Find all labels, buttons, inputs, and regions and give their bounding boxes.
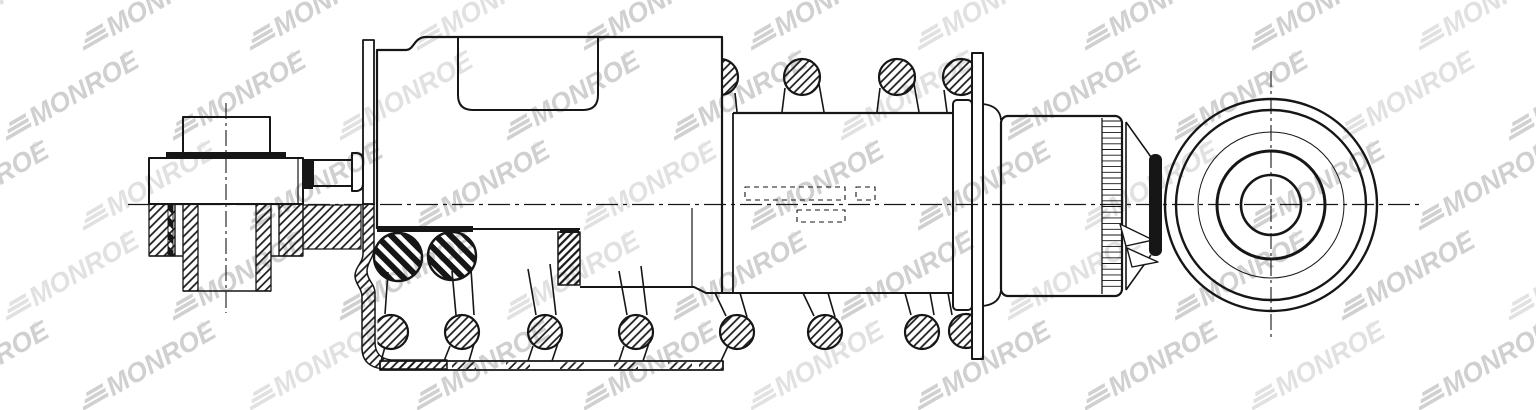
monroe-wing-icon bbox=[76, 203, 110, 231]
monroe-watermark: MONROE® bbox=[407, 0, 556, 58]
monroe-watermark: MONROE® bbox=[1409, 0, 1536, 58]
monroe-wing-icon bbox=[500, 293, 534, 321]
stud-section-hatch bbox=[303, 205, 361, 249]
monroe-watermark: MONROE® bbox=[998, 45, 1147, 148]
monroe-watermark: MONROE® bbox=[0, 45, 145, 148]
watermark-text: MONROE bbox=[268, 0, 389, 42]
monroe-watermark: MONROE® bbox=[741, 0, 890, 58]
monroe-watermark: MONROE® bbox=[1242, 315, 1391, 410]
monroe-wing-icon bbox=[1412, 203, 1446, 231]
monroe-wing-icon bbox=[1245, 23, 1279, 51]
monroe-watermark: MONROE® bbox=[1075, 315, 1224, 410]
monroe-watermark: MONROE® bbox=[831, 225, 980, 328]
watermark-text: MONROE bbox=[1437, 135, 1536, 222]
monroe-watermark: MONROE® bbox=[1499, 45, 1536, 148]
monroe-watermark: MONROE® bbox=[0, 315, 55, 410]
monroe-wing-icon bbox=[667, 293, 701, 321]
monroe-watermark: MONROE® bbox=[1499, 225, 1536, 328]
watermark-text: MONROE bbox=[1103, 0, 1224, 42]
monroe-wing-icon bbox=[1245, 383, 1279, 410]
monroe-watermark: MONROE® bbox=[908, 0, 1057, 58]
monroe-wing-icon bbox=[243, 23, 277, 51]
monroe-wing-icon bbox=[243, 383, 277, 410]
monroe-watermark: MONROE® bbox=[574, 135, 723, 238]
monroe-watermark: MONROE® bbox=[741, 135, 890, 238]
monroe-wing-icon bbox=[577, 203, 611, 231]
monroe-wing-icon bbox=[744, 383, 778, 410]
monroe-watermark: MONROE® bbox=[574, 0, 723, 58]
monroe-watermark: MONROE® bbox=[73, 315, 222, 410]
watermark-text: MONROE bbox=[769, 0, 890, 42]
monroe-watermark: MONROE® bbox=[407, 135, 556, 238]
watermark-text: MONROE bbox=[0, 315, 55, 402]
watermark-text: MONROE bbox=[1437, 0, 1536, 42]
watermark-text: MONROE bbox=[435, 0, 556, 42]
monroe-wing-icon bbox=[1078, 203, 1112, 231]
monroe-wing-icon bbox=[166, 293, 200, 321]
monroe-watermark: MONROE® bbox=[73, 0, 222, 58]
monroe-wing-icon bbox=[1168, 293, 1202, 321]
product-technical-drawing: MONROE®MONROE®MONROE®MONROE®MONROE®MONRO… bbox=[0, 0, 1536, 410]
monroe-watermark: MONROE® bbox=[73, 135, 222, 238]
monroe-wing-icon bbox=[333, 113, 367, 141]
monroe-wing-icon bbox=[911, 23, 945, 51]
watermark-text: MONROE bbox=[602, 0, 723, 42]
monroe-watermark: MONROE® bbox=[497, 45, 646, 148]
monroe-wing-icon bbox=[1335, 293, 1369, 321]
seal-ring bbox=[1149, 154, 1162, 256]
bump-stop-section bbox=[558, 232, 580, 285]
watermark-text: MONROE bbox=[0, 0, 55, 42]
monroe-wing-icon bbox=[500, 113, 534, 141]
monroe-watermark: MONROE® bbox=[330, 45, 479, 148]
monroe-watermark: MONROE® bbox=[664, 225, 813, 328]
monroe-wing-icon bbox=[0, 113, 33, 141]
monroe-watermark: MONROE® bbox=[1165, 225, 1314, 328]
monroe-watermark: MONROE® bbox=[0, 135, 55, 238]
monroe-watermark: MONROE® bbox=[1332, 225, 1481, 328]
monroe-watermark: MONROE® bbox=[0, 0, 55, 58]
monroe-wing-icon bbox=[1078, 23, 1112, 51]
housing-seat-edge bbox=[377, 226, 473, 232]
monroe-watermark: MONROE® bbox=[1409, 135, 1536, 238]
watermark-text: MONROE bbox=[1270, 0, 1391, 42]
watermark-text: MONROE bbox=[0, 135, 55, 222]
monroe-watermark: MONROE® bbox=[163, 45, 312, 148]
monroe-watermark: MONROE® bbox=[664, 45, 813, 148]
monroe-wing-icon bbox=[744, 203, 778, 231]
stud-washer bbox=[303, 159, 313, 189]
monroe-wing-icon bbox=[667, 113, 701, 141]
monroe-wing-icon bbox=[1168, 113, 1202, 141]
monroe-wing-icon bbox=[834, 113, 868, 141]
monroe-wing-icon bbox=[1001, 293, 1035, 321]
monroe-wing-icon bbox=[410, 383, 444, 410]
monroe-watermark: MONROE® bbox=[1075, 0, 1224, 58]
monroe-watermark: MONROE® bbox=[240, 0, 389, 58]
monroe-wing-icon bbox=[744, 23, 778, 51]
monroe-wing-icon bbox=[1502, 113, 1536, 141]
monroe-wing-icon bbox=[911, 383, 945, 410]
monroe-wing-icon bbox=[0, 293, 33, 321]
watermark-text: MONROE bbox=[936, 0, 1057, 42]
monroe-wing-icon bbox=[76, 383, 110, 410]
monroe-watermark: MONROE® bbox=[1165, 45, 1314, 148]
watermark-text: MONROE bbox=[101, 0, 222, 42]
monroe-watermark: MONROE® bbox=[1242, 0, 1391, 58]
monroe-wing-icon bbox=[1412, 23, 1446, 51]
monroe-wing-icon bbox=[577, 383, 611, 410]
monroe-wing-icon bbox=[76, 23, 110, 51]
monroe-wing-icon bbox=[1078, 383, 1112, 410]
monroe-watermark: MONROE® bbox=[0, 225, 145, 328]
monroe-wing-icon bbox=[1502, 293, 1536, 321]
boot-lip-upper bbox=[1120, 224, 1153, 246]
monroe-wing-icon bbox=[834, 293, 868, 321]
monroe-wing-icon bbox=[1412, 383, 1446, 410]
monroe-watermark: MONROE® bbox=[1409, 315, 1536, 410]
watermark-text: MONROE bbox=[1437, 315, 1536, 402]
monroe-watermark: MONROE® bbox=[1332, 45, 1481, 148]
monroe-wing-icon bbox=[911, 203, 945, 231]
shock-absorber-cross-section-drawing: MONROE®MONROE®MONROE®MONROE®MONROE®MONRO… bbox=[0, 0, 1536, 410]
